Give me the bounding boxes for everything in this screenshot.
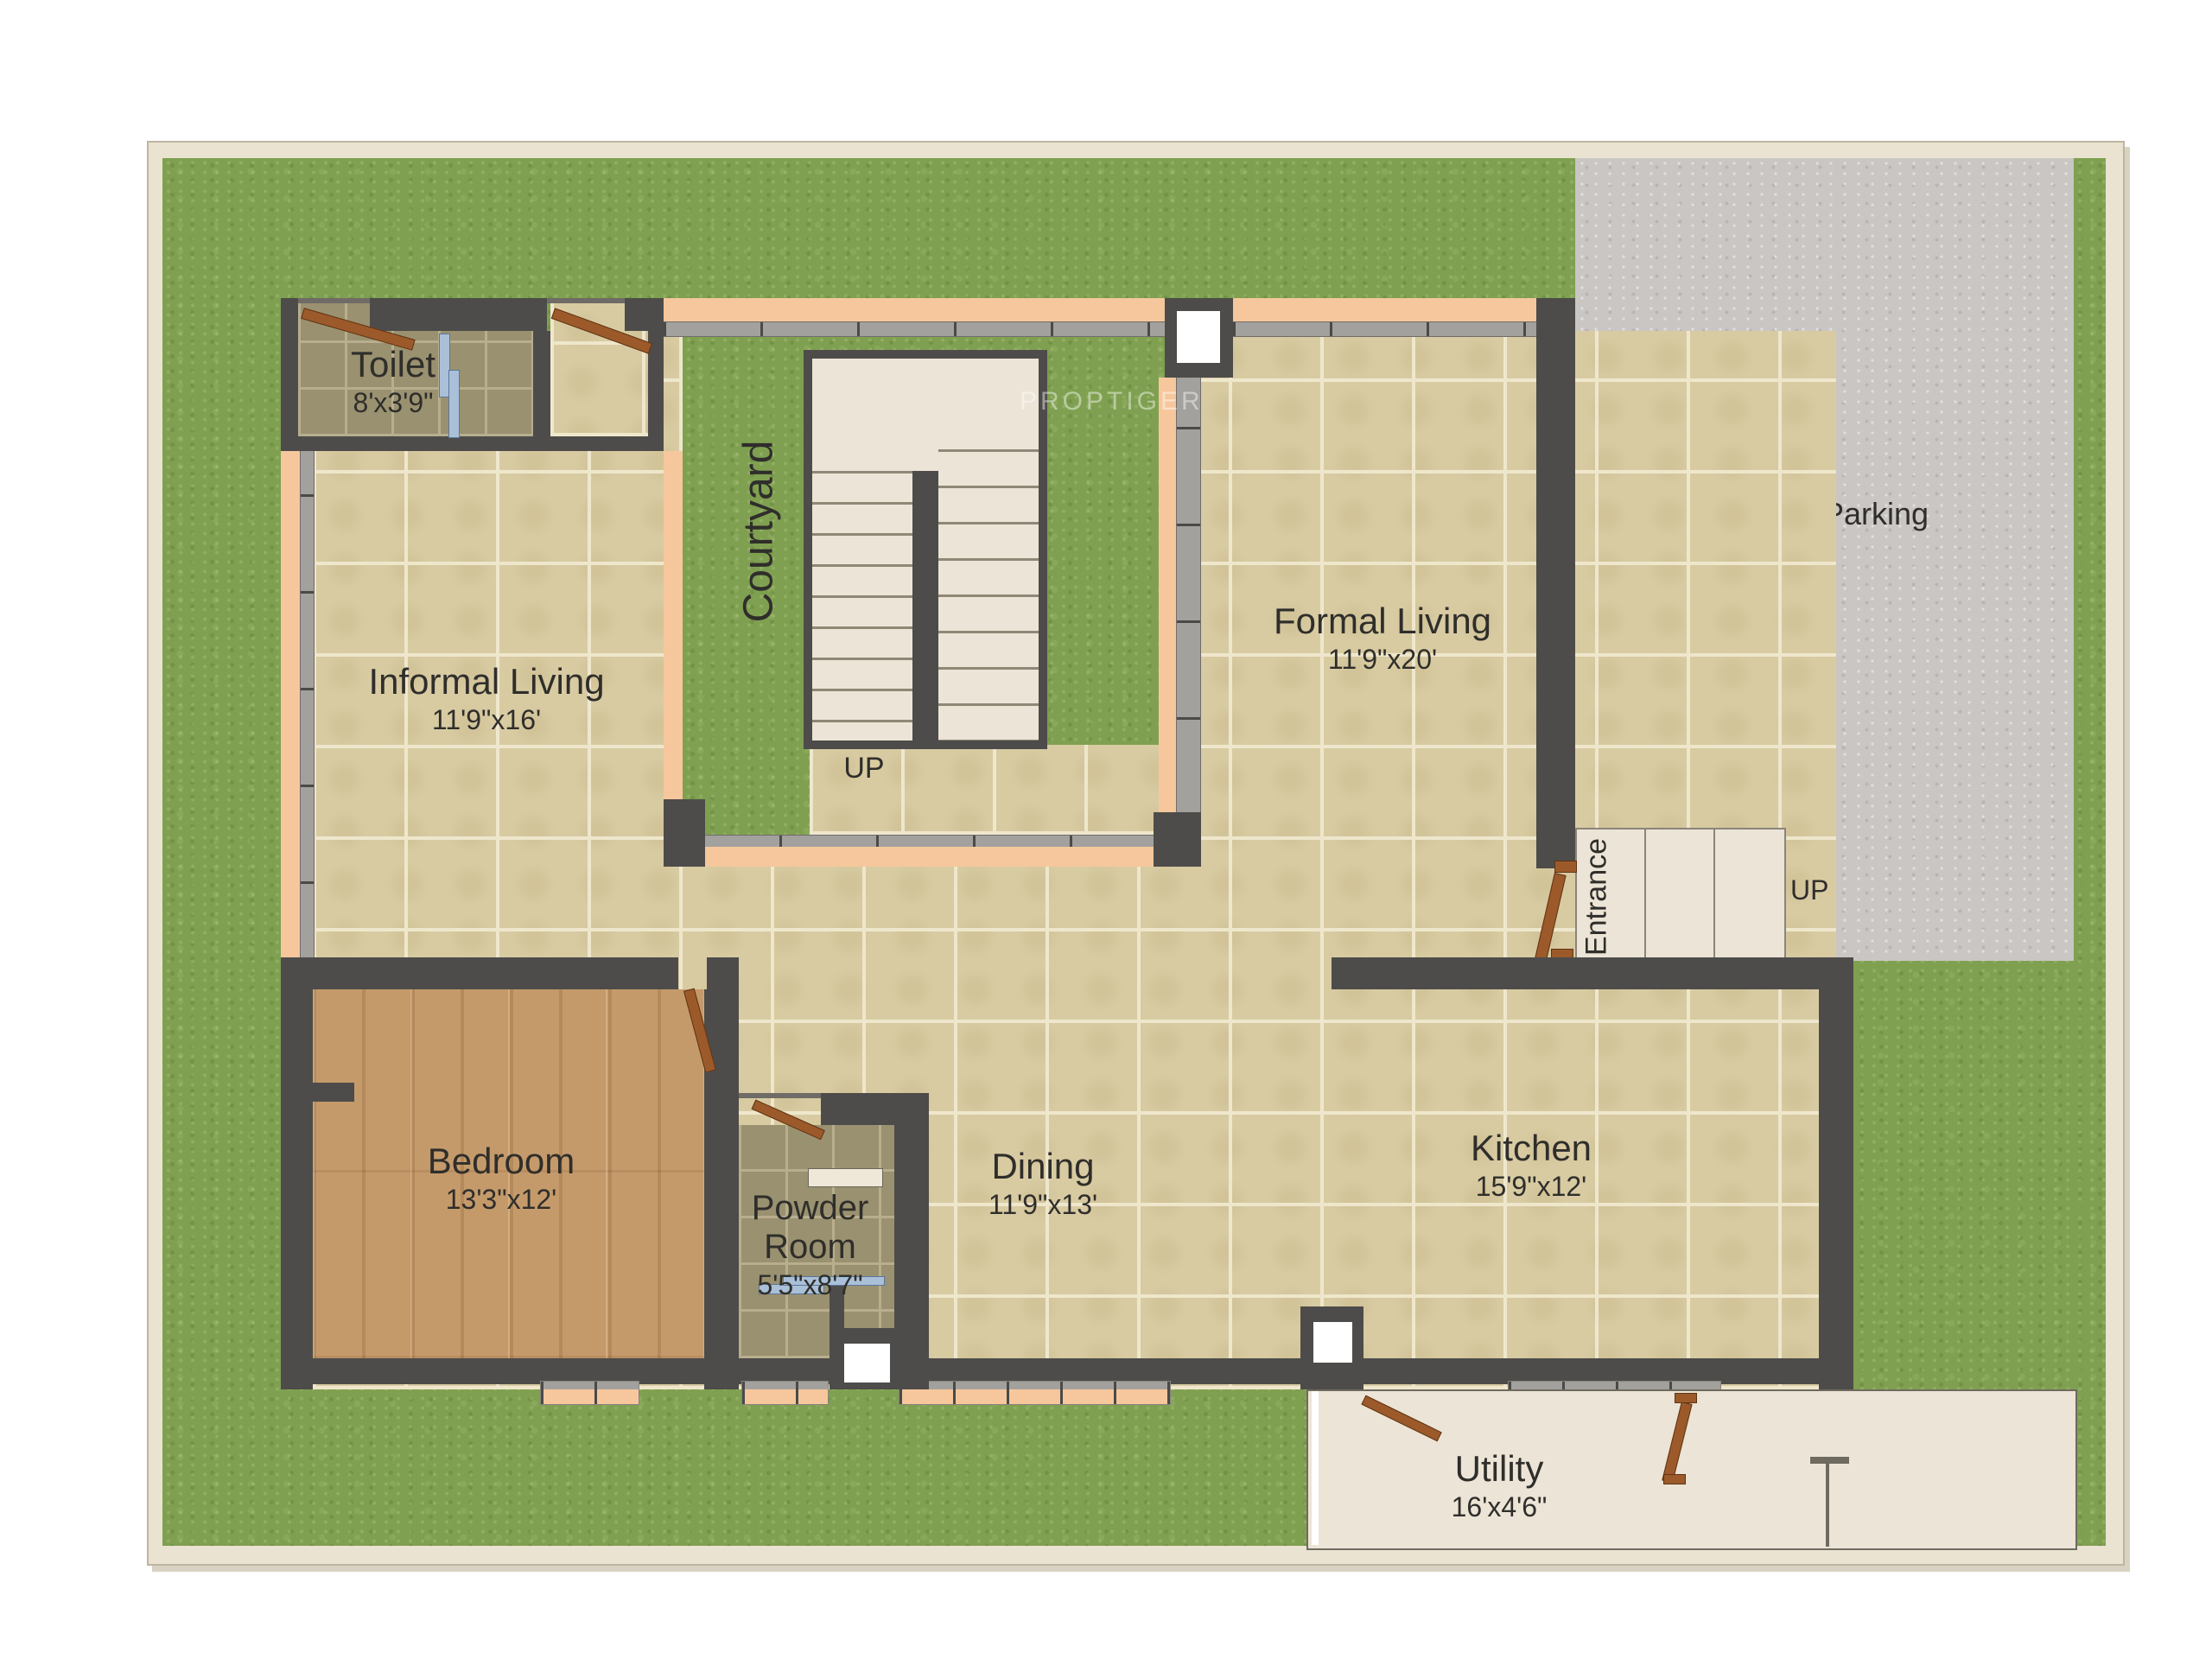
room-label-bedroom: Bedroom 13'3"x12' [350,1141,652,1216]
room-label-kitchen: Kitchen 15'9"x12' [1380,1128,1682,1203]
wall-segment [1536,298,1575,868]
wall-sill [664,298,1165,321]
window-strip [664,321,1165,337]
room-dims: 11'9"x13' [892,1190,1194,1221]
parking-up-label: UP [1790,874,1859,906]
room-label-utility: Utility 16'x4'6" [1348,1448,1650,1523]
column-core [1177,311,1220,363]
room-name: Informal Living [335,661,638,702]
wall-segment [281,1083,354,1102]
door-hinge [1663,1474,1686,1484]
room-name: Bedroom [350,1141,652,1181]
step-divider [1644,828,1646,961]
wall-gap [1312,1391,1319,1545]
room-dims: 11'9"x20' [1227,645,1538,676]
room-label-dining: Dining 11'9"x13' [892,1146,1194,1221]
column-core [1313,1322,1352,1363]
wall-segment [648,298,664,451]
room-name: Dining [892,1146,1194,1186]
window-strip [1233,321,1536,337]
wall-sill [683,847,1201,867]
wall-segment [533,331,550,436]
door-threshold [298,298,370,303]
vanity-counter [808,1168,883,1187]
window-strip [300,451,315,981]
door-hinge [1554,861,1577,873]
wall-segment [707,957,739,989]
room-name: Utility [1348,1448,1650,1489]
wall-segment [664,799,705,867]
stairs-right-flight [938,449,1039,741]
window-strip [1176,378,1201,817]
room-label-formal-living: Formal Living 11'9"x20' [1227,601,1538,676]
room-dims: 13'3"x12' [350,1185,652,1216]
stairs-divider-wall [912,471,938,749]
wall-sill [1233,298,1536,321]
door-threshold [547,298,625,303]
stairs-left-flight [812,471,912,741]
wall-segment [281,957,678,989]
door-threshold [739,1093,821,1098]
wall-sill [664,451,683,799]
wall-segment [1332,957,1853,989]
room-dims: 15'9"x12' [1380,1172,1682,1203]
window-strip [899,1381,1171,1405]
floor-plan: Covered Car Parking Courtyard UP Toilet … [0,0,2212,1659]
watermark: PROPTIGER [1020,387,1204,416]
entrance-label: Entrance [1580,838,1614,956]
room-label-powder-room: Powder Room 5'5"x8'7" [730,1189,890,1300]
room-label-informal-living: Informal Living 11'9"x16' [335,661,638,736]
wall-segment [1819,957,1853,1389]
window-strip [741,1381,829,1405]
room-name: Toilet [285,344,501,385]
room-label-toilet: Toilet 8'x3'9" [285,344,501,419]
wall-segment [1154,812,1201,867]
room-dims: 11'9"x16' [335,705,638,736]
wall-segment [281,957,313,1389]
wall-segment [1810,1457,1849,1464]
room-name: Formal Living [1227,601,1538,641]
wall-sill [281,451,300,981]
room-name: Kitchen [1380,1128,1682,1168]
window-strip [540,1381,639,1405]
wall-segment [281,436,664,451]
room-name: Powder Room [730,1189,890,1267]
column-core [844,1344,890,1382]
wall-sill [1159,378,1176,817]
step-divider [1713,828,1715,961]
door-hinge [1675,1393,1697,1403]
room-dims: 5'5"x8'7" [730,1270,890,1301]
wall-segment [1826,1462,1829,1547]
room-dims: 8'x3'9" [285,388,501,419]
wall-segment [370,298,547,331]
room-dims: 16'x4'6" [1348,1492,1650,1523]
stairs-up-label: UP [812,752,916,785]
courtyard-label: Courtyard [735,441,783,623]
